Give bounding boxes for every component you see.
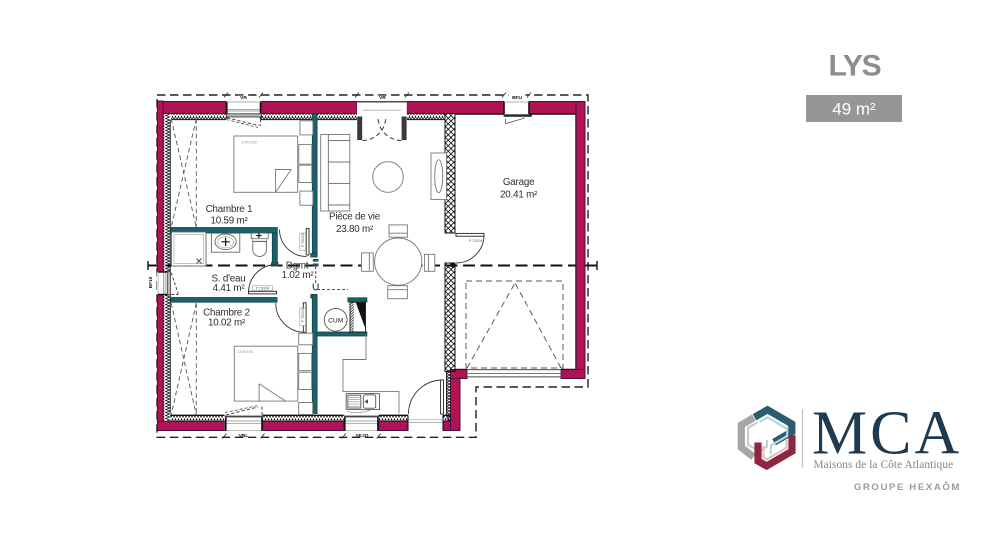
svg-text:GROUPE HEXAÔM: GROUPE HEXAÔM <box>854 481 961 493</box>
svg-text:MCA: MCA <box>812 400 962 468</box>
svg-text:1.02 m²: 1.02 m² <box>282 270 315 281</box>
svg-text:Maisons de la Côte Atlantique: Maisons de la Côte Atlantique <box>814 459 954 471</box>
svg-text:BFU: BFU <box>512 95 522 101</box>
svg-text:140X190: 140X190 <box>237 349 254 354</box>
svg-text:Garage: Garage <box>503 177 535 188</box>
svg-text:23.80 m²: 23.80 m² <box>336 224 374 235</box>
svg-text:P 73/204: P 73/204 <box>256 287 270 291</box>
svg-text:Pièce de vie: Pièce de vie <box>329 212 381 223</box>
svg-text:140X190: 140X190 <box>242 140 259 145</box>
svg-text:VR: VR <box>379 95 386 101</box>
svg-text:P 72/204: P 72/204 <box>301 233 305 247</box>
svg-text:BF10: BF10 <box>148 276 154 288</box>
svg-text:49 m²: 49 m² <box>832 100 876 119</box>
svg-text:4.41 m²: 4.41 m² <box>213 283 246 294</box>
svg-text:P 72/204: P 72/204 <box>301 308 305 322</box>
svg-text:SEJO: SEJO <box>356 433 369 439</box>
svg-text:LYS: LYS <box>829 50 881 83</box>
svg-text:10.59 m²: 10.59 m² <box>210 216 248 227</box>
svg-text:10.02 m²: 10.02 m² <box>208 318 246 329</box>
svg-text:CUM: CUM <box>328 317 343 324</box>
svg-text:VBL: VBL <box>239 433 249 439</box>
svg-text:P 73/204: P 73/204 <box>469 239 483 243</box>
svg-text:20.41 m²: 20.41 m² <box>500 190 538 201</box>
svg-text:VR: VR <box>240 95 247 101</box>
svg-text:Chambre 1: Chambre 1 <box>206 204 253 215</box>
